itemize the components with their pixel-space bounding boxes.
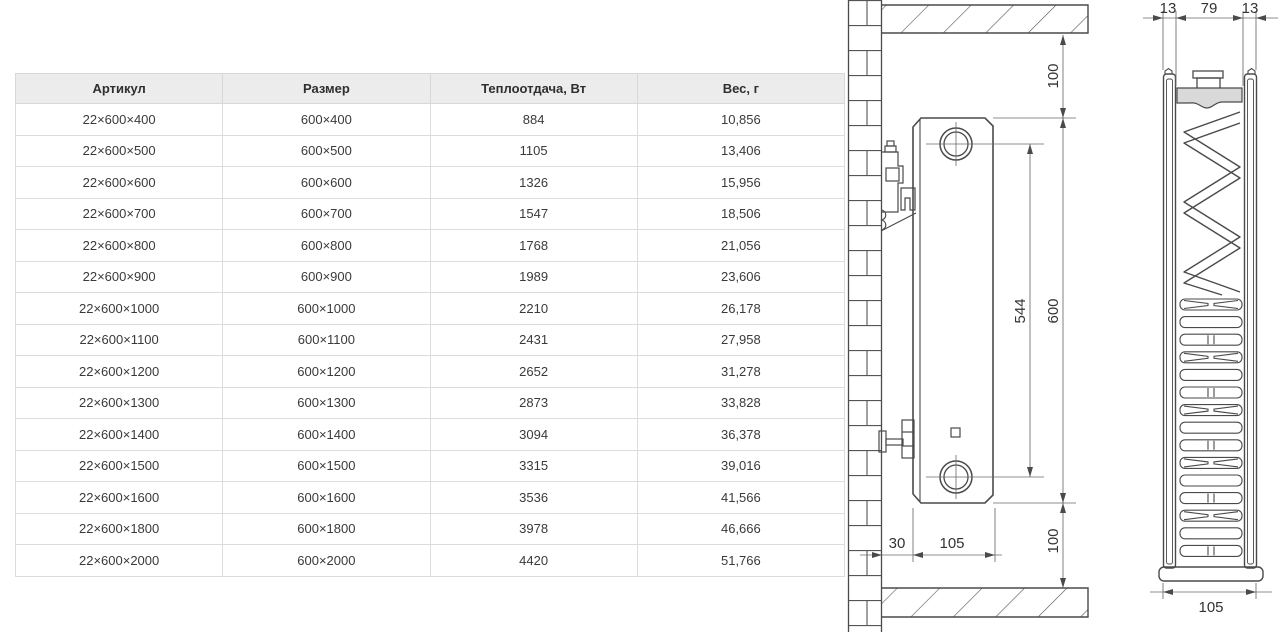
spec-table-head-row: АртикулРазмерТеплоотдача, ВтВес, г: [16, 74, 845, 104]
heat-output-cell: 4420: [430, 545, 637, 577]
table-row: 22×600×600600×600132615,956: [16, 167, 845, 199]
dim-front-panel-label: 13: [1160, 0, 1177, 17]
spec-table-header: АртикулРазмерТеплоотдача, ВтВес, г: [16, 74, 845, 104]
weight-cell: 33,828: [637, 387, 844, 419]
weight-cell: 51,766: [637, 545, 844, 577]
weight-cell: 13,406: [637, 135, 844, 167]
table-row: 22×600×1000600×1000221026,178: [16, 293, 845, 325]
heat-output-cell: 1768: [430, 230, 637, 262]
weight-cell: 27,958: [637, 324, 844, 356]
spec-table-body: 22×600×400600×40088410,85622×600×500600×…: [16, 104, 845, 577]
article-cell: 22×600×700: [16, 198, 223, 230]
section-view-drawing: 13 79 13 105: [1143, 0, 1278, 616]
heat-output-cell: 1326: [430, 167, 637, 199]
heat-output-cell: 3978: [430, 513, 637, 545]
size-cell: 600×2000: [223, 545, 430, 577]
size-cell: 600×800: [223, 230, 430, 262]
weight-cell: 31,278: [637, 356, 844, 388]
weight-cell: 26,178: [637, 293, 844, 325]
heat-output-cell: 1547: [430, 198, 637, 230]
dim-bottom-clearance-label: 100: [1045, 528, 1062, 553]
size-cell: 600×600: [223, 167, 430, 199]
dim-back-panel-label: 13: [1242, 0, 1259, 17]
column-header-size: Размер: [223, 74, 430, 104]
column-header-heat-output: Теплоотдача, Вт: [430, 74, 637, 104]
weight-cell: 46,666: [637, 513, 844, 545]
table-row: 22×600×400600×40088410,856: [16, 104, 845, 136]
dim-depth-label: 105: [939, 535, 964, 552]
table-row: 22×600×900600×900198923,606: [16, 261, 845, 293]
weight-cell: 18,506: [637, 198, 844, 230]
table-row: 22×600×1800600×1800397846,666: [16, 513, 845, 545]
table-row: 22×600×1200600×1200265231,278: [16, 356, 845, 388]
table-row: 22×600×700600×700154718,506: [16, 198, 845, 230]
weight-cell: 41,566: [637, 482, 844, 514]
table-row: 22×600×1600600×1600353641,566: [16, 482, 845, 514]
wall-brick-section: [849, 0, 882, 632]
article-cell: 22×600×2000: [16, 545, 223, 577]
weight-cell: 36,378: [637, 419, 844, 451]
size-cell: 600×1400: [223, 419, 430, 451]
weight-cell: 10,856: [637, 104, 844, 136]
floor-hatch: [882, 588, 1088, 617]
size-cell: 600×1300: [223, 387, 430, 419]
table-row: 22×600×2000600×2000442051,766: [16, 545, 845, 577]
heat-output-cell: 3315: [430, 450, 637, 482]
dim-connection-spacing-label: 544: [1012, 298, 1029, 323]
radiator-datasheet-page: { "table": { "columns": ["Артикул", "Раз…: [0, 0, 1280, 632]
article-cell: 22×600×500: [16, 135, 223, 167]
weight-cell: 15,956: [637, 167, 844, 199]
article-cell: 22×600×600: [16, 167, 223, 199]
size-cell: 600×700: [223, 198, 430, 230]
heat-output-cell: 1105: [430, 135, 637, 167]
article-cell: 22×600×1800: [16, 513, 223, 545]
bottom-base: [1159, 567, 1263, 581]
ceiling-hatch: [882, 5, 1088, 33]
size-cell: 600×1000: [223, 293, 430, 325]
size-cell: 600×1800: [223, 513, 430, 545]
top-wall-bracket: [881, 141, 916, 231]
top-plug: [1193, 71, 1223, 90]
size-cell: 600×1600: [223, 482, 430, 514]
article-cell: 22×600×1300: [16, 387, 223, 419]
dim-height-label: 600: [1045, 298, 1062, 323]
article-cell: 22×600×1200: [16, 356, 223, 388]
table-row: 22×600×1100600×1100243127,958: [16, 324, 845, 356]
convector-grille-slots: [1180, 299, 1242, 556]
dim-core-width-label: 79: [1201, 0, 1218, 17]
size-cell: 600×1100: [223, 324, 430, 356]
size-cell: 600×900: [223, 261, 430, 293]
heat-output-cell: 2431: [430, 324, 637, 356]
heat-output-cell: 2873: [430, 387, 637, 419]
side-view-drawing: 100 544 600 100 30 105: [849, 0, 1089, 632]
heat-output-cell: 884: [430, 104, 637, 136]
table-row: 22×600×1500600×1500331539,016: [16, 450, 845, 482]
article-cell: 22×600×1100: [16, 324, 223, 356]
table-row: 22×600×1300600×1300287333,828: [16, 387, 845, 419]
size-cell: 600×1200: [223, 356, 430, 388]
size-cell: 600×1500: [223, 450, 430, 482]
article-cell: 22×600×1000: [16, 293, 223, 325]
dim-total-depth-label: 105: [1198, 599, 1223, 616]
table-row: 22×600×800600×800176821,056: [16, 230, 845, 262]
bottom-wall-bracket: [879, 420, 914, 458]
column-header-article: Артикул: [16, 74, 223, 104]
heat-output-cell: 3536: [430, 482, 637, 514]
article-cell: 22×600×400: [16, 104, 223, 136]
article-cell: 22×600×1500: [16, 450, 223, 482]
weight-cell: 39,016: [637, 450, 844, 482]
article-cell: 22×600×900: [16, 261, 223, 293]
column-header-weight: Вес, г: [637, 74, 844, 104]
article-cell: 22×600×800: [16, 230, 223, 262]
table-row: 22×600×1400600×1400309436,378: [16, 419, 845, 451]
weight-cell: 23,606: [637, 261, 844, 293]
weight-cell: 21,056: [637, 230, 844, 262]
table-row: 22×600×500600×500110513,406: [16, 135, 845, 167]
size-cell: 600×400: [223, 104, 430, 136]
radiator-spec-table: АртикулРазмерТеплоотдача, ВтВес, г 22×60…: [15, 73, 845, 577]
heat-output-cell: 2652: [430, 356, 637, 388]
heat-output-cell: 1989: [430, 261, 637, 293]
convector-fin-section: [1184, 112, 1240, 295]
dim-wall-gap-label: 30: [889, 535, 906, 552]
article-cell: 22×600×1400: [16, 419, 223, 451]
article-cell: 22×600×1600: [16, 482, 223, 514]
heat-output-cell: 2210: [430, 293, 637, 325]
top-header-channel: [1177, 88, 1242, 108]
heat-output-cell: 3094: [430, 419, 637, 451]
technical-drawings: 100 544 600 100 30 105: [845, 0, 1280, 632]
dim-top-clearance-label: 100: [1045, 63, 1062, 88]
size-cell: 600×500: [223, 135, 430, 167]
